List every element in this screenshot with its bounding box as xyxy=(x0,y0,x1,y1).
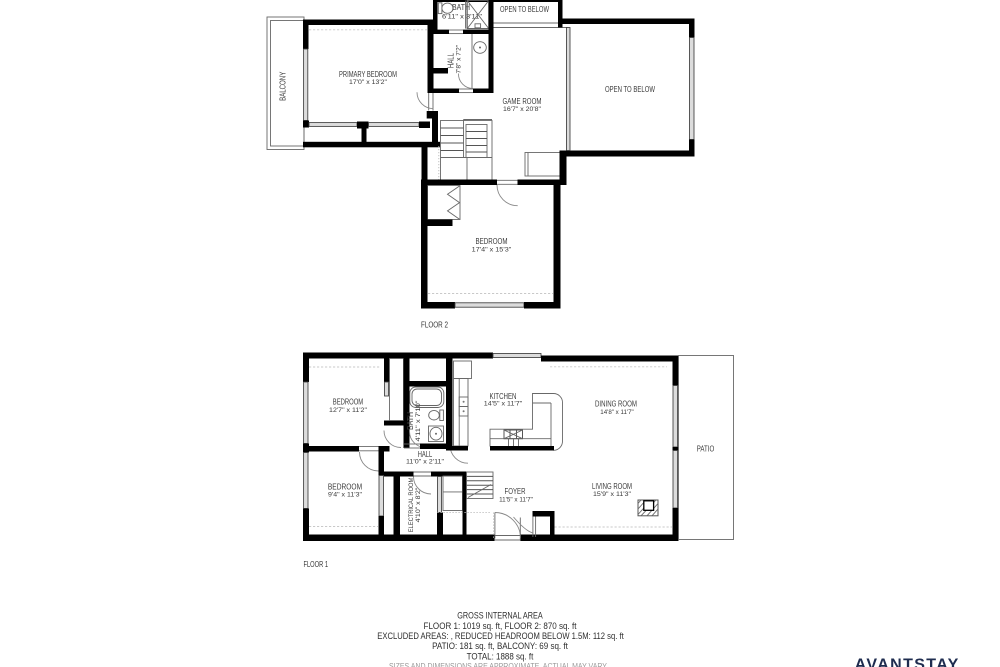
svg-text:PATIO: 181 sq. ft, BALCONY: 69: PATIO: 181 sq. ft, BALCONY: 69 sq. ft xyxy=(432,641,568,651)
svg-text:17'0" x 13'2": 17'0" x 13'2" xyxy=(349,79,388,86)
svg-text:11'5" x 11'7": 11'5" x 11'7" xyxy=(499,496,533,503)
svg-text:BEDROOM: BEDROOM xyxy=(476,237,508,246)
svg-text:11'0" x 2'11": 11'0" x 2'11" xyxy=(406,458,445,465)
svg-text:DINING ROOM: DINING ROOM xyxy=(595,400,637,409)
svg-text:PRIMARY BEDROOM: PRIMARY BEDROOM xyxy=(339,70,397,79)
svg-text:BATH: BATH xyxy=(406,412,415,430)
svg-text:GAME ROOM: GAME ROOM xyxy=(503,97,542,106)
svg-text:15'9" x 11'3": 15'9" x 11'3" xyxy=(593,491,632,498)
svg-text:LIVING ROOM: LIVING ROOM xyxy=(592,482,632,491)
svg-text:14'5" x 11'7": 14'5" x 11'7" xyxy=(484,401,523,408)
svg-text:BALCONY: BALCONY xyxy=(279,71,288,101)
svg-text:EXCLUDED AREAS: , REDUCED HEAD: EXCLUDED AREAS: , REDUCED HEADROOM BELOW… xyxy=(377,631,624,641)
svg-text:GROSS INTERNAL AREA: GROSS INTERNAL AREA xyxy=(457,610,543,620)
svg-text:AVANTSTAY: AVANTSTAY xyxy=(855,657,959,667)
svg-text:BEDROOM: BEDROOM xyxy=(328,482,362,491)
svg-text:9'4" x 11'3": 9'4" x 11'3" xyxy=(328,491,363,498)
svg-text:16'7" x 20'8": 16'7" x 20'8" xyxy=(503,106,542,113)
svg-text:FLOOR 1: FLOOR 1 xyxy=(304,560,329,569)
svg-text:HALL: HALL xyxy=(447,53,456,68)
svg-text:PATIO: PATIO xyxy=(697,445,715,454)
svg-text:OPEN TO BELOW: OPEN TO BELOW xyxy=(605,85,655,94)
svg-text:FLOOR 2: FLOOR 2 xyxy=(421,321,448,330)
svg-text:FOYER: FOYER xyxy=(505,487,526,496)
svg-text:FLOOR 1: 1019 sq. ft, FLOOR 2:: FLOOR 1: 1019 sq. ft, FLOOR 2: 870 sq. f… xyxy=(424,621,577,631)
svg-text:SIZES AND DIMENSIONS ARE APPRO: SIZES AND DIMENSIONS ARE APPROXIMATE, AC… xyxy=(389,661,608,667)
svg-text:14'8" x 11'7": 14'8" x 11'7" xyxy=(600,409,634,416)
svg-text:17'4" x 15'3": 17'4" x 15'3" xyxy=(472,247,512,254)
svg-text:4'11" x 7'10": 4'11" x 7'10" xyxy=(415,400,422,442)
svg-text:BEDROOM: BEDROOM xyxy=(333,398,364,407)
svg-text:7'8" x 7'2": 7'8" x 7'2" xyxy=(456,44,463,73)
svg-text:4'10" x 8'2": 4'10" x 8'2" xyxy=(415,487,422,522)
svg-text:OPEN TO BELOW: OPEN TO BELOW xyxy=(500,5,549,14)
svg-text:12'7" x 11'2": 12'7" x 11'2" xyxy=(329,407,367,414)
svg-text:TOTAL: 1888 sq. ft: TOTAL: 1888 sq. ft xyxy=(467,651,534,661)
svg-text:ELECTRICAL ROOM: ELECTRICAL ROOM xyxy=(408,477,415,532)
